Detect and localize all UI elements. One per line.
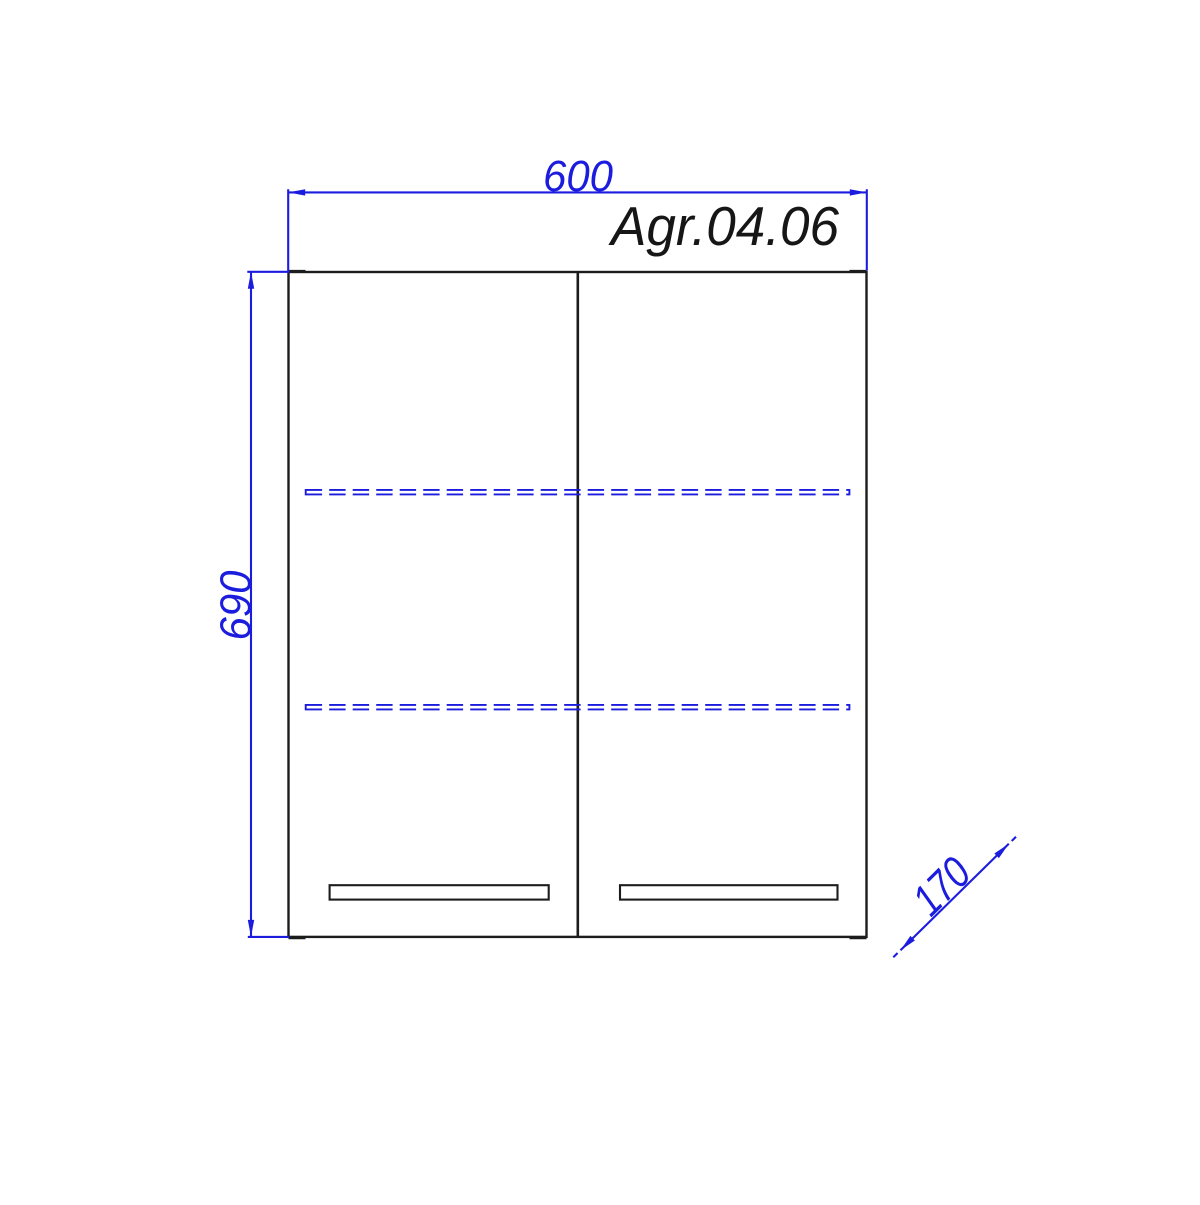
svg-text:Agr.04.06: Agr.04.06 xyxy=(608,195,839,257)
svg-text:600: 600 xyxy=(543,152,613,201)
svg-text:690: 690 xyxy=(211,570,260,640)
